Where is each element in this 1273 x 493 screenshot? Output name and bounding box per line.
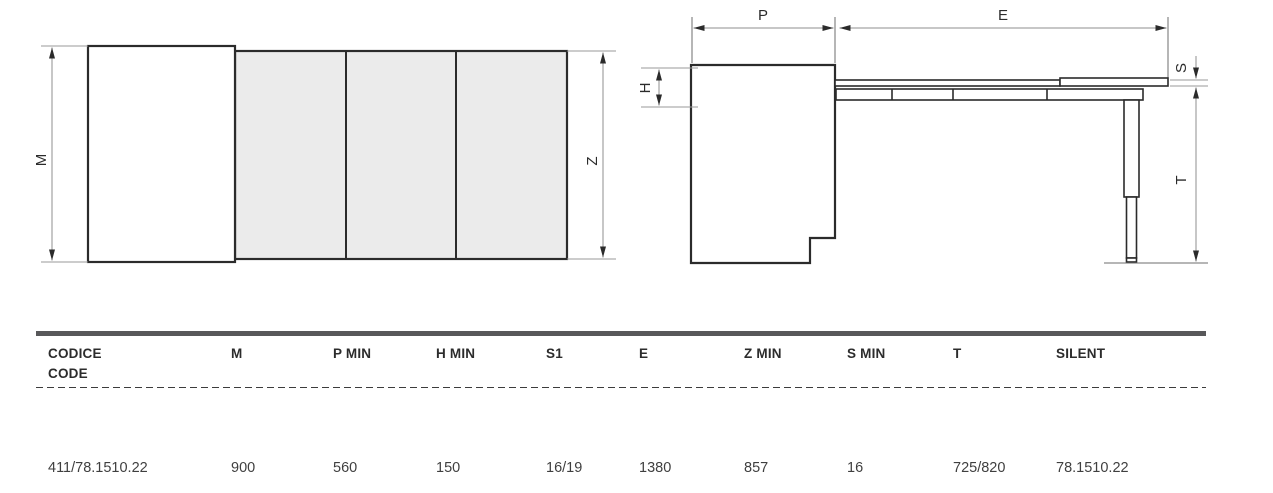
header-s-min: S MIN: [847, 346, 886, 361]
row-m: 900: [231, 460, 255, 476]
row-t: 725/820: [953, 460, 1005, 476]
header-z-min: Z MIN: [744, 346, 782, 361]
row-p-min: 560: [333, 460, 357, 476]
header-codice-line2: CODE: [48, 366, 102, 381]
row-s-min: 16: [847, 460, 863, 476]
table-dashed-divider: [36, 387, 1206, 388]
header-p-min: P MIN: [333, 346, 371, 361]
header-e: E: [639, 346, 648, 361]
row-z-min: 857: [744, 460, 768, 476]
header-silent: SILENT: [1056, 346, 1105, 361]
header-codice-line1: CODICE: [48, 346, 102, 361]
row-h-min: 150: [436, 460, 460, 476]
header-t: T: [953, 346, 961, 361]
row-silent: 78.1510.22: [1056, 460, 1129, 476]
header-s1: S1: [546, 346, 563, 361]
row-codice-code: 411/78.1510.22: [48, 460, 148, 476]
spec-sheet-page: M Z P E H: [0, 0, 1273, 493]
header-m: M: [231, 346, 242, 361]
header-codice-code: CODICE CODE: [48, 346, 102, 381]
spec-table: CODICE CODE M P MIN H MIN S1 E Z MIN S M…: [0, 0, 1273, 493]
row-e: 1380: [639, 460, 671, 476]
table-header-bar: [36, 331, 1206, 336]
row-s1: 16/19: [546, 460, 582, 476]
header-h-min: H MIN: [436, 346, 475, 361]
